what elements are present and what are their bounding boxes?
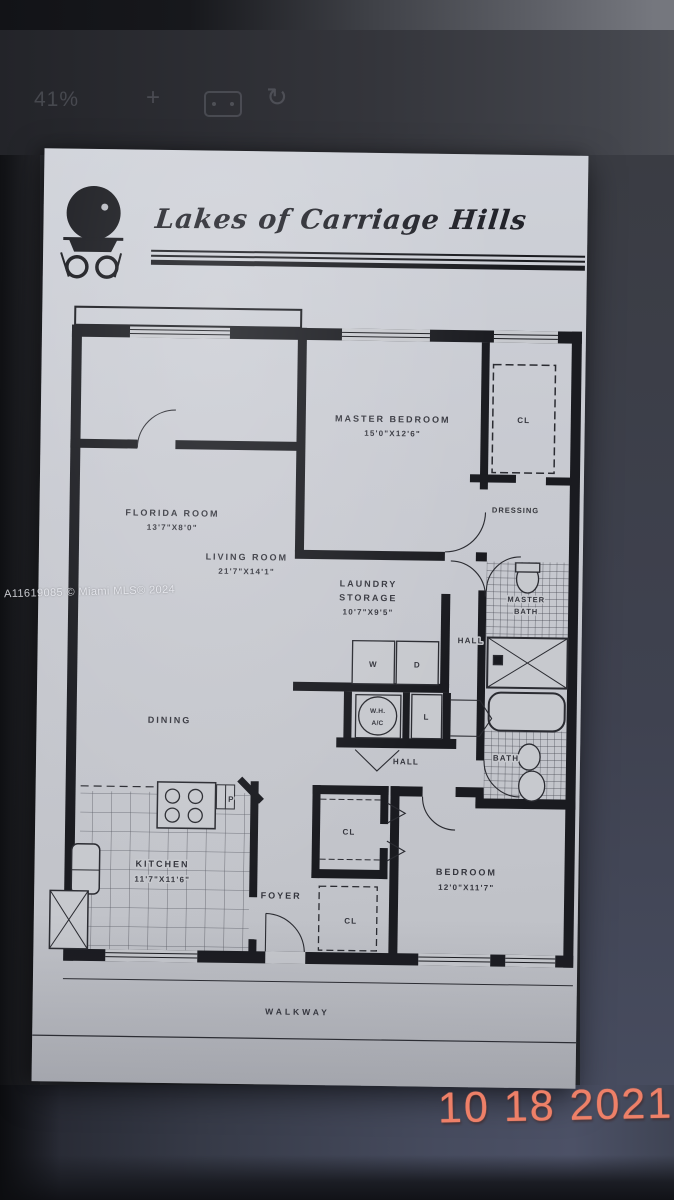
- photo-background-bottom-corner: [0, 1085, 60, 1200]
- label-ac: A/C: [371, 720, 383, 727]
- label-foyer: FOYER: [261, 890, 302, 901]
- label-kitchen: KITCHEN: [135, 859, 189, 870]
- label-walkway: WALKWAY: [265, 1006, 330, 1017]
- kitchen-sink: [71, 844, 100, 894]
- label-dining: DINING: [148, 715, 192, 726]
- label-master-bath-line1: MASTER: [507, 595, 545, 605]
- label-master-bedroom: MASTER BEDROOM: [335, 413, 451, 425]
- dims-laundry: 10'7"X9'5": [343, 607, 394, 617]
- label-laundry-line2: STORAGE: [339, 592, 397, 603]
- florida-room-porch-wall: [75, 307, 301, 328]
- label-bedroom: BEDROOM: [436, 867, 497, 878]
- label-hall-upper: HALL: [458, 636, 484, 645]
- bath-toilet: [518, 744, 540, 770]
- label-dryer: D: [414, 660, 421, 669]
- label-entry-closet: CL: [344, 917, 357, 926]
- zoom-level-indicator[interactable]: 41%: [34, 88, 79, 112]
- stove: [157, 782, 216, 829]
- floorplan-document: Lakes of Carriage Hills: [32, 148, 589, 1089]
- fit-frame-icon[interactable]: [204, 91, 242, 117]
- dims-kitchen: 11'7"X11'6": [134, 875, 190, 885]
- photo-background-bottom-strip: [0, 1155, 674, 1200]
- label-bath: BATH: [493, 754, 520, 763]
- label-washer: W: [369, 660, 378, 669]
- master-toilet-tank: [516, 563, 540, 572]
- dims-living-room: 21'7"X14'1": [218, 567, 275, 577]
- label-dressing: DRESSING: [492, 506, 539, 516]
- header-rule-lines: [151, 250, 585, 271]
- photo-background-top-strip: [0, 0, 674, 30]
- floorplan-drawing: FLORIDA ROOM 13'7"X8'0" MASTER BEDROOM 1…: [32, 298, 586, 1051]
- wh-ac-circle: [358, 697, 397, 736]
- photo-background-right: [580, 155, 674, 1085]
- bathtub: [488, 693, 565, 732]
- label-hall-lower: HALL: [393, 757, 419, 766]
- bath-sink: [518, 771, 544, 801]
- label-laundry-line1: LAUNDRY: [340, 578, 398, 589]
- photo-of-floorplan-screen: 41% + ↻ Lakes of Carriage Hills: [0, 0, 674, 1200]
- carriage-logo: [55, 182, 130, 285]
- zoom-in-icon[interactable]: +: [146, 84, 160, 112]
- label-pantry: P: [228, 795, 235, 804]
- label-master-closet: CL: [517, 416, 530, 425]
- label-living-room: LIVING ROOM: [206, 552, 289, 563]
- dims-master-bedroom: 15'0"X12'6": [364, 429, 421, 439]
- rotate-icon[interactable]: ↻: [266, 82, 288, 113]
- label-water-heater: W.H.: [370, 708, 385, 715]
- community-name: Lakes of Carriage Hills: [154, 204, 578, 236]
- photo-date-stamp: 10 18 2021: [438, 1080, 674, 1134]
- viewer-toolbar: 41% + ↻: [0, 80, 400, 130]
- label-foyer-closet: CL: [342, 827, 355, 836]
- shower-drain: [493, 656, 502, 665]
- dims-florida-room: 13'7"X8'0": [147, 523, 198, 533]
- label-master-bath-line2: BATH: [514, 607, 538, 616]
- label-florida-room: FLORIDA ROOM: [125, 507, 219, 518]
- dims-bedroom: 12'0"X11'7": [438, 883, 494, 893]
- label-linen: L: [424, 713, 430, 722]
